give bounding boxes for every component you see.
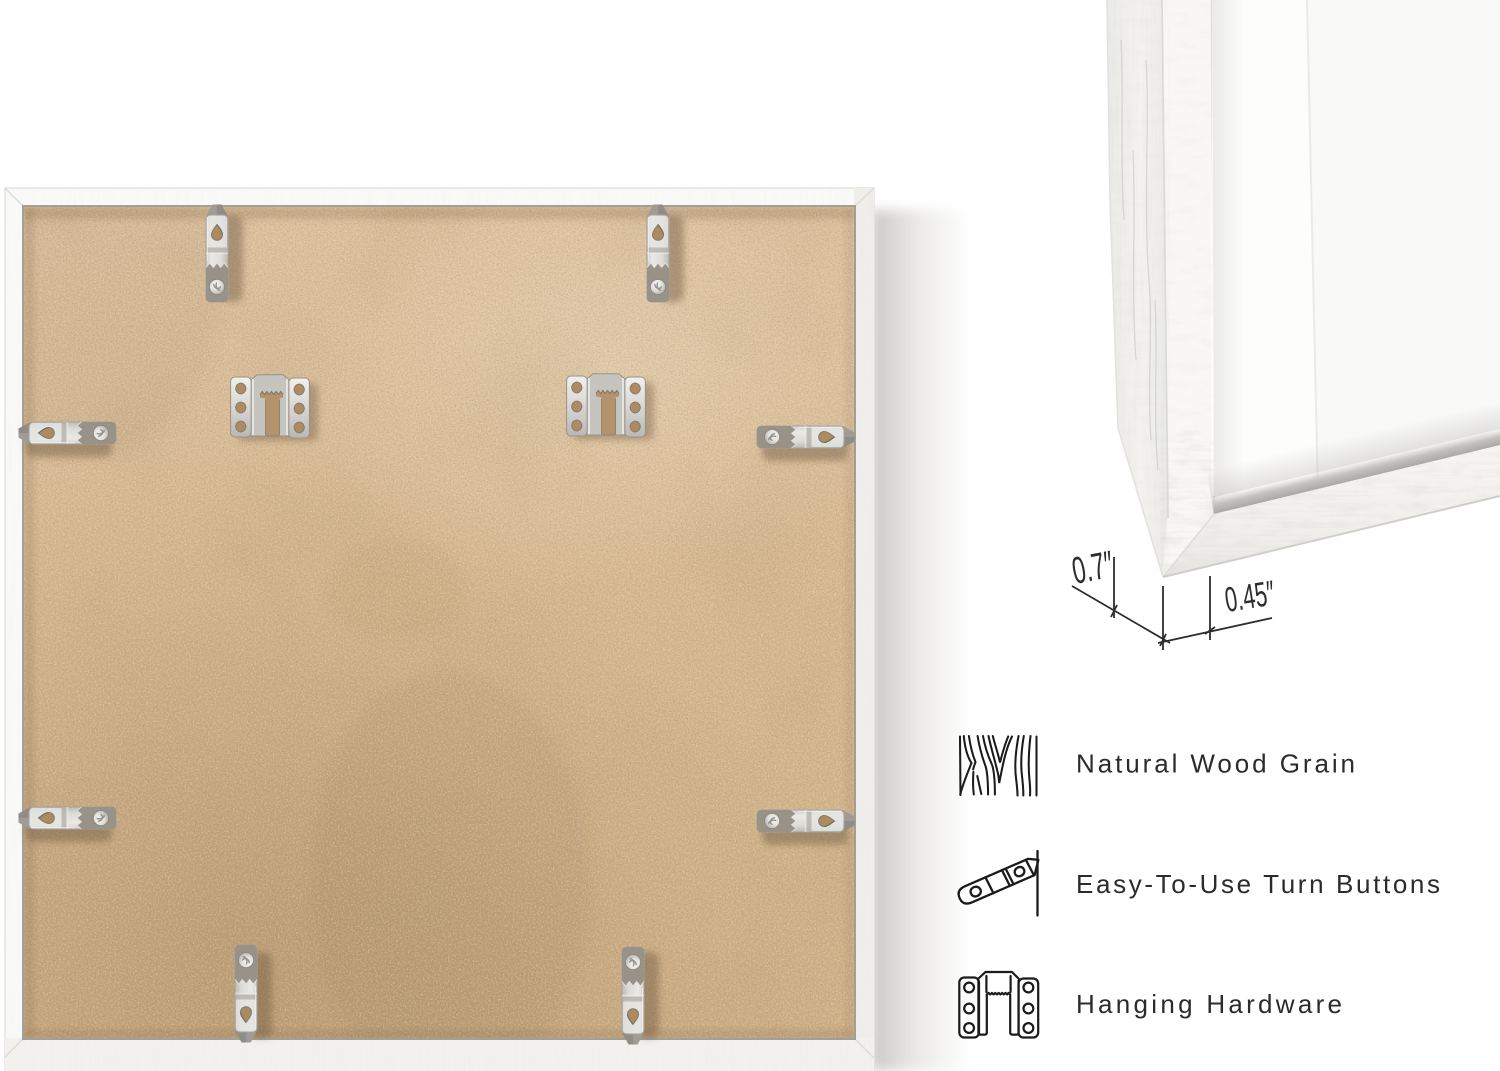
- svg-text:Easy-To-Use Turn Buttons: Easy-To-Use Turn Buttons: [1076, 869, 1440, 899]
- svg-text:0.45″: 0.45″: [1222, 575, 1277, 621]
- svg-text:Hanging Hardware: Hanging Hardware: [1076, 989, 1342, 1019]
- svg-text:0.7″: 0.7″: [1068, 542, 1117, 592]
- svg-text:Natural Wood Grain: Natural Wood Grain: [1076, 749, 1355, 779]
